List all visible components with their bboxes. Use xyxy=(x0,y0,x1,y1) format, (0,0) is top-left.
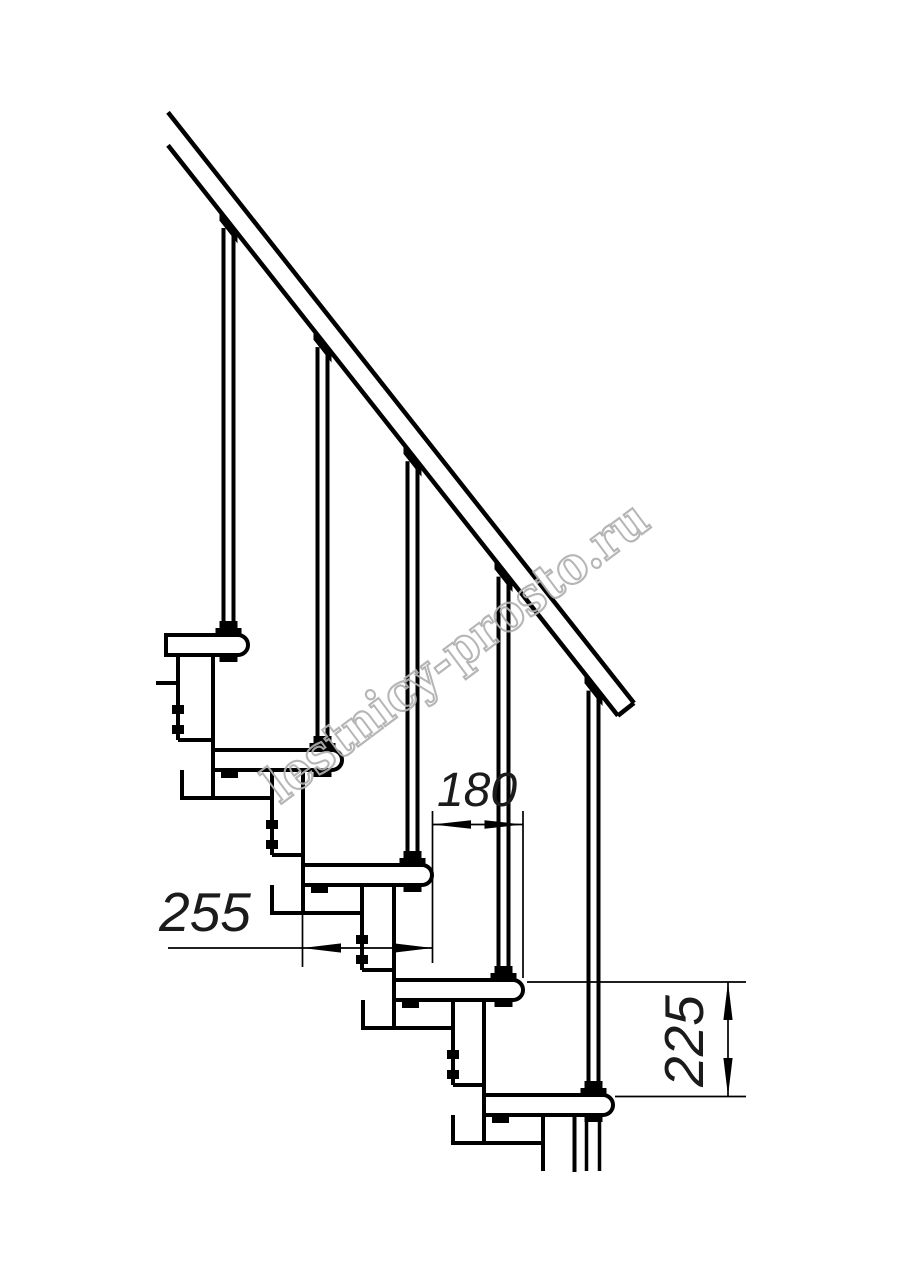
arrow-icon xyxy=(723,982,732,1020)
step-module-3 xyxy=(270,865,432,980)
baluster-foot-icon xyxy=(585,1081,603,1088)
dimension-label-tread: 255 xyxy=(158,881,251,943)
baluster-foot-icon xyxy=(581,1088,607,1095)
dimension-label-rise: 225 xyxy=(653,995,715,1088)
tread xyxy=(303,865,432,885)
baluster-foot-icon xyxy=(404,851,422,858)
baluster-nut-icon xyxy=(585,1114,603,1122)
step-module-5 xyxy=(451,1095,613,1181)
adjust-bolt-icon xyxy=(356,955,368,964)
tread xyxy=(166,635,248,655)
arrow-icon xyxy=(485,820,524,829)
tread-bolt-icon xyxy=(221,769,238,778)
adjust-bolt-icon xyxy=(172,705,184,714)
adjust-bolt-icon xyxy=(266,840,278,849)
baluster-1 xyxy=(216,211,242,662)
adjust-bolt-icon xyxy=(447,1050,459,1059)
arrow-icon xyxy=(394,943,433,952)
tread-bolt-icon xyxy=(492,1114,509,1123)
baluster-foot-icon xyxy=(220,621,238,628)
drawing-page: 180 255 225 lestnicy-prosto.ru xyxy=(0,0,914,1280)
handrail-top-edge xyxy=(168,112,634,703)
baluster-foot-icon xyxy=(400,858,426,865)
baluster-nut-icon xyxy=(220,654,238,662)
handrail xyxy=(168,112,634,715)
dimension-label-run: 180 xyxy=(437,764,517,817)
adjust-bolt-icon xyxy=(356,935,368,944)
step-module-4 xyxy=(361,980,523,1095)
step-module-1 xyxy=(86,635,248,750)
baluster-nut-icon xyxy=(404,884,422,892)
staircase-structure xyxy=(86,112,634,1181)
arrow-icon xyxy=(433,820,472,829)
baluster-foot-icon xyxy=(491,973,517,980)
baluster-foot-icon xyxy=(495,966,513,973)
tread-bolt-icon xyxy=(127,654,144,663)
adjust-bolt-icon xyxy=(447,1070,459,1079)
adjust-bolt-icon xyxy=(266,820,278,829)
handrail-end-cap xyxy=(618,703,634,716)
adjust-bolt-icon xyxy=(172,725,184,734)
tread xyxy=(484,1095,613,1115)
arrow-icon xyxy=(303,943,342,952)
baluster-nut-icon xyxy=(495,999,513,1007)
baluster-5 xyxy=(581,673,607,1122)
staircase-technical-drawing: 180 255 225 lestnicy-prosto.ru xyxy=(0,0,914,1280)
tread-bolt-icon xyxy=(311,884,328,893)
baluster-foot-icon xyxy=(216,628,242,635)
tread xyxy=(394,980,523,1000)
arrow-icon xyxy=(723,1058,732,1096)
tread-bolt-icon xyxy=(402,999,419,1008)
